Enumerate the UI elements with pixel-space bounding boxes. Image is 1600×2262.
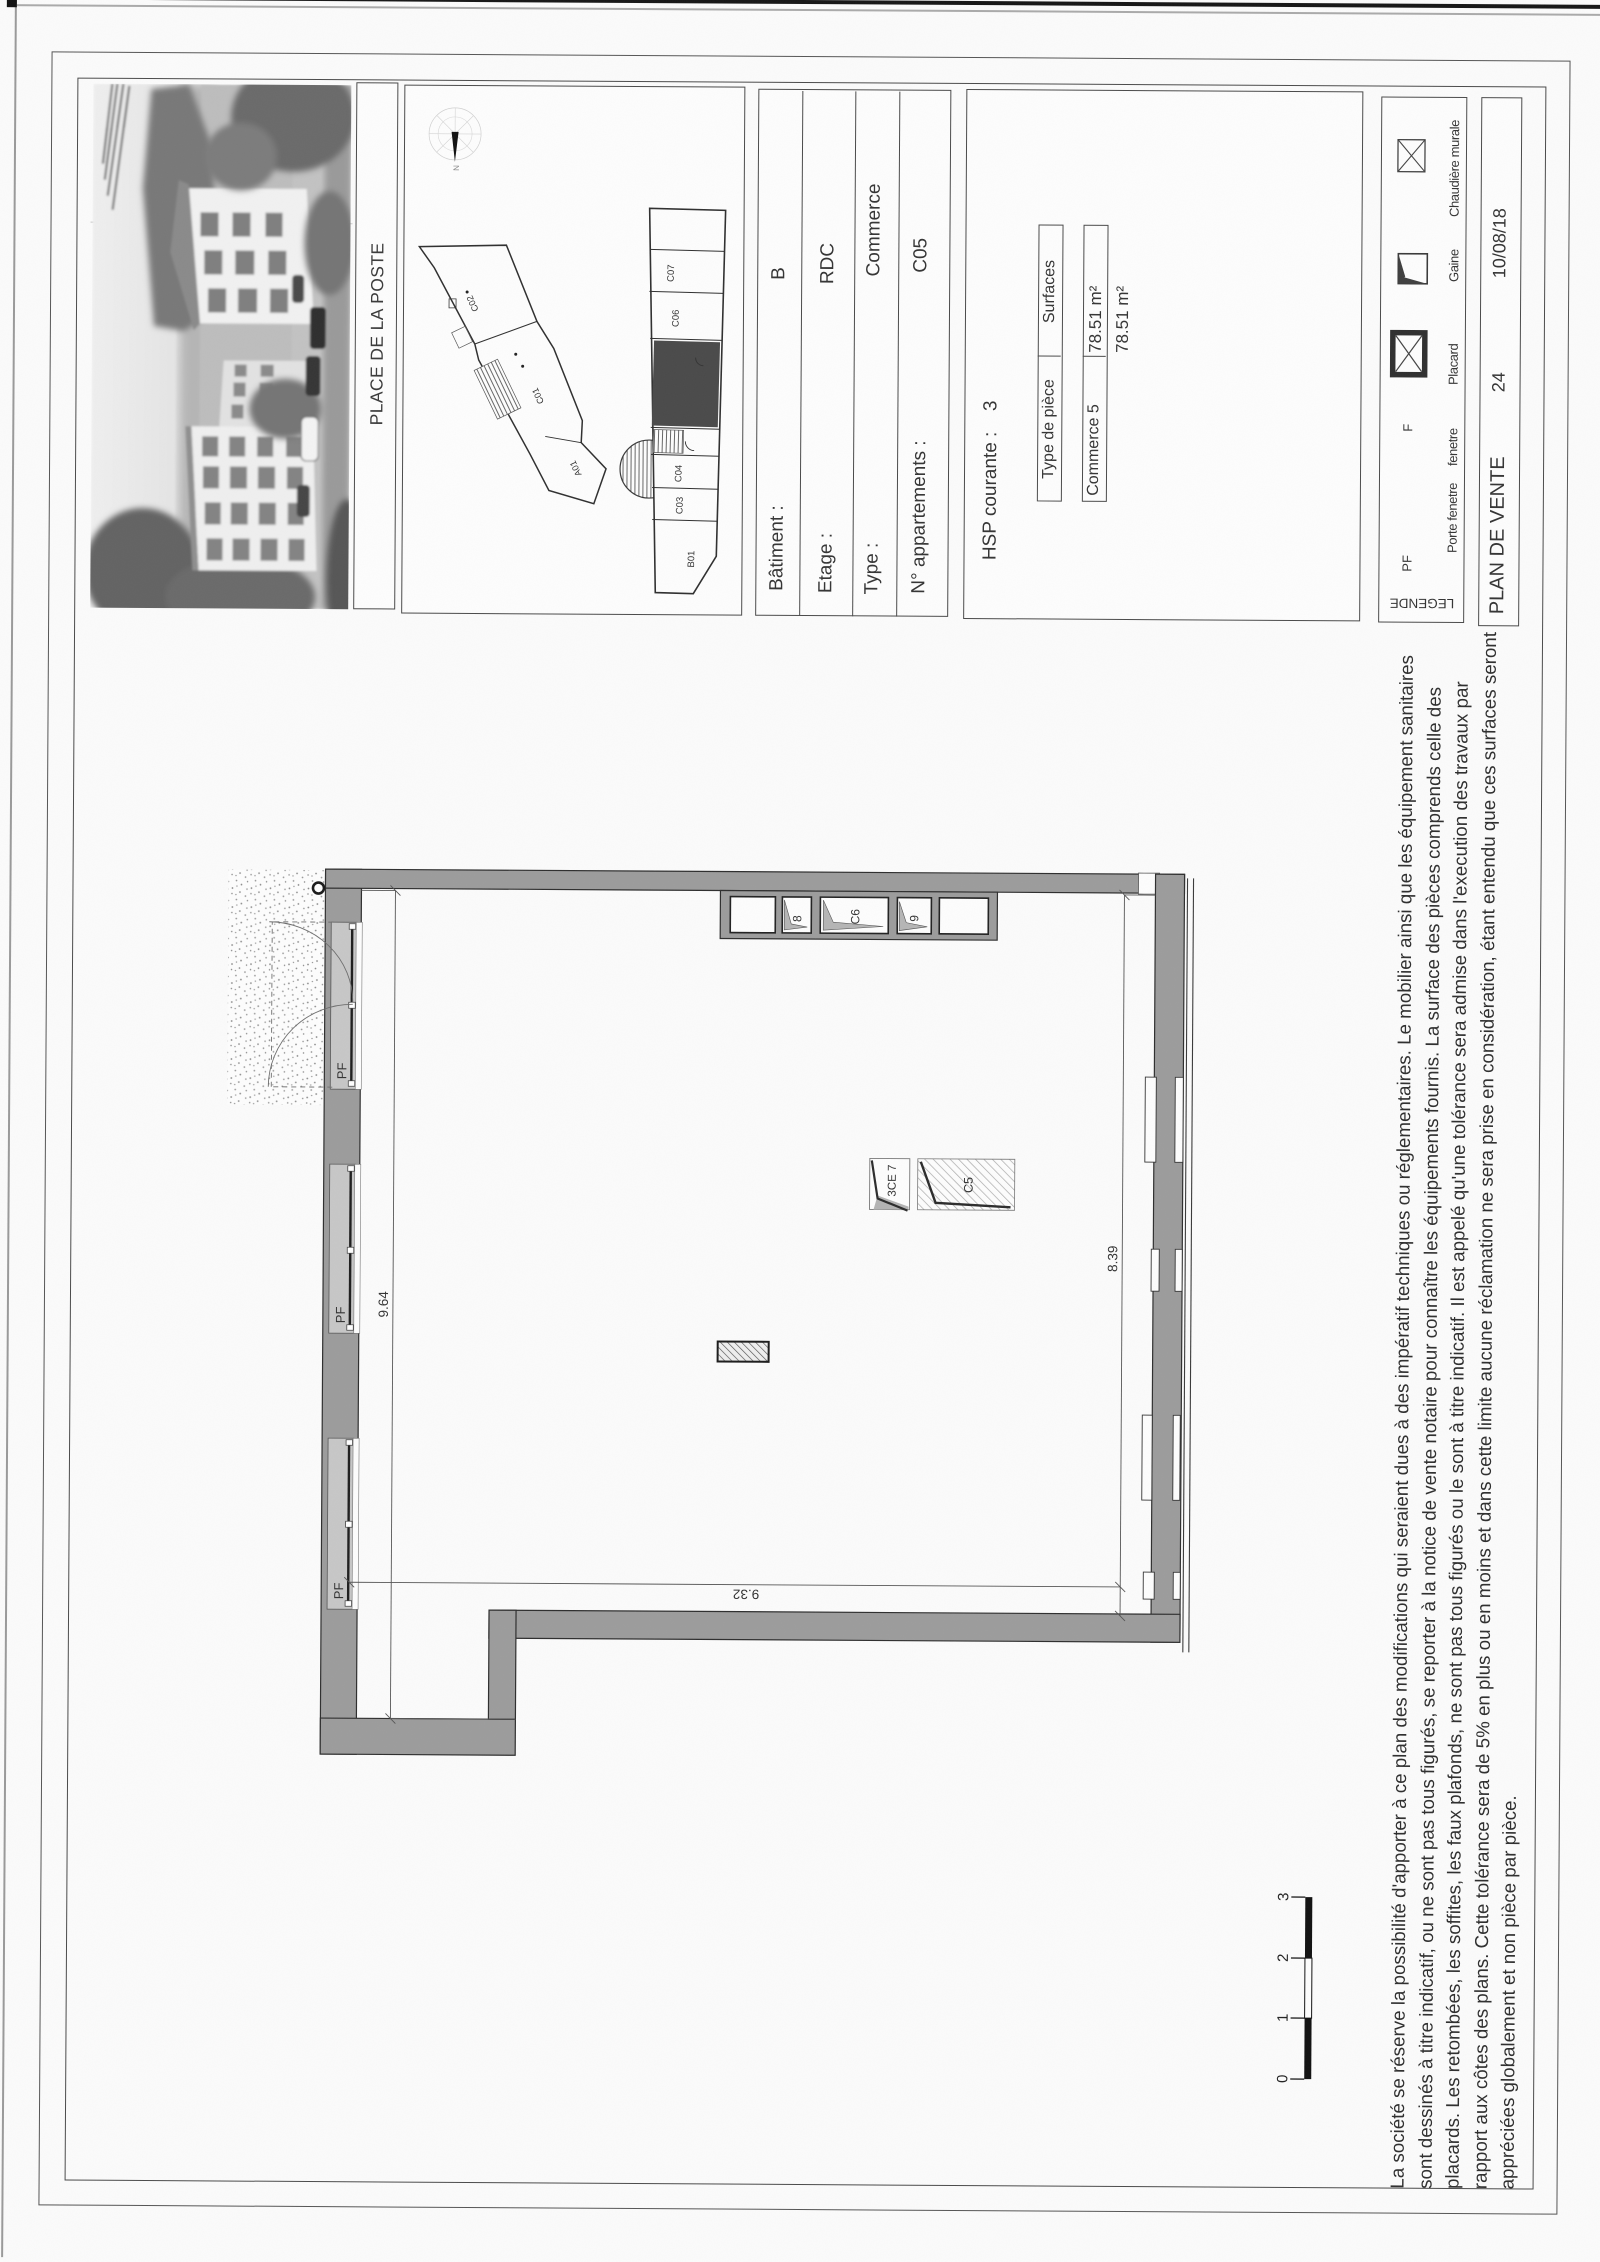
svg-text:9: 9 [907, 915, 921, 922]
svg-text:C07: C07 [666, 264, 677, 282]
svg-text:PF: PF [334, 1062, 349, 1079]
svg-text:9.32: 9.32 [733, 1587, 759, 1602]
svg-text:8: 8 [790, 915, 804, 922]
svg-text:C5: C5 [962, 1177, 976, 1193]
svg-text:N: N [452, 165, 461, 171]
svg-text:C6: C6 [848, 909, 862, 925]
svg-text:C04: C04 [673, 465, 684, 483]
svg-text:B01: B01 [686, 551, 697, 568]
svg-text:PF: PF [331, 1582, 346, 1599]
svg-text:8.39: 8.39 [1105, 1246, 1120, 1272]
svg-text:0: 0 [1274, 2075, 1291, 2083]
svg-text:9.64: 9.64 [376, 1291, 391, 1318]
svg-text:C03: C03 [674, 497, 685, 515]
svg-text:C06: C06 [670, 309, 681, 327]
svg-text:PF: PF [333, 1306, 348, 1323]
svg-text:1: 1 [1275, 2014, 1292, 2022]
svg-text:3: 3 [1275, 1893, 1292, 1901]
svg-text:3CE 7: 3CE 7 [887, 1165, 899, 1197]
svg-text:2: 2 [1275, 1954, 1292, 1962]
